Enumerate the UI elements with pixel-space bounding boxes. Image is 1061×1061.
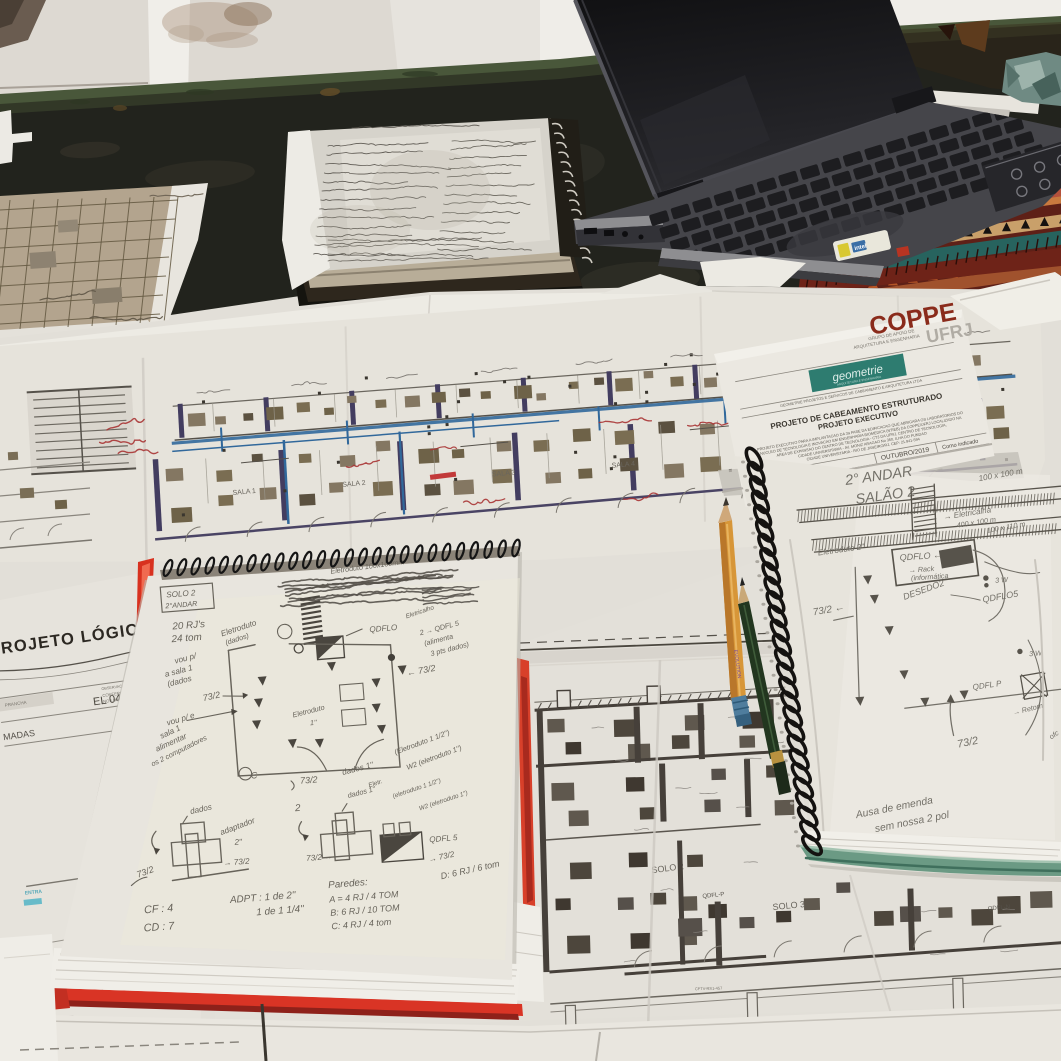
svg-text:73/2: 73/2 xyxy=(300,774,318,785)
svg-text:C: C xyxy=(251,770,259,781)
svg-text:CFTV-RS1-457: CFTV-RS1-457 xyxy=(695,985,723,991)
svg-text:2'': 2'' xyxy=(233,837,243,847)
svg-text:3 W: 3 W xyxy=(995,575,1010,585)
svg-text:CF : 4: CF : 4 xyxy=(144,902,174,916)
svg-text:CD : 7: CD : 7 xyxy=(143,920,175,934)
